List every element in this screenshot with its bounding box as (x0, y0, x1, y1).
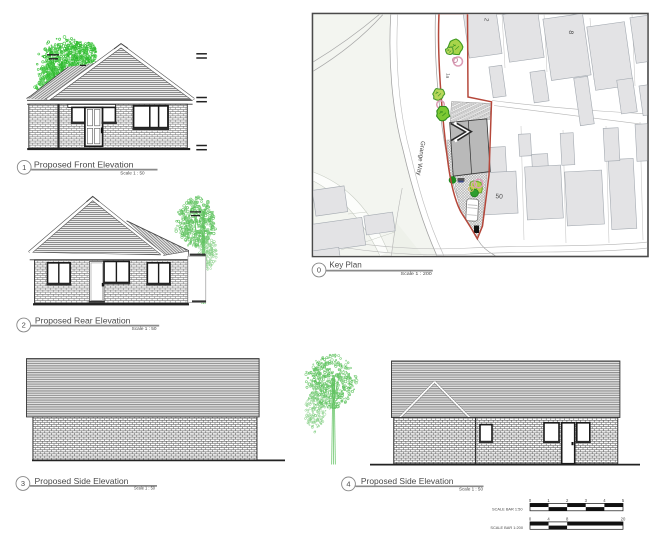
svg-text:SCALE BAR 1:200: SCALE BAR 1:200 (490, 525, 523, 530)
svg-text:0: 0 (317, 266, 321, 275)
svg-text:20: 20 (621, 516, 626, 521)
svg-text:Proposed Side Elevation: Proposed Side Elevation (35, 476, 129, 486)
svg-text:4: 4 (346, 480, 350, 489)
svg-text:Scale 1 : 50: Scale 1 : 50 (459, 486, 484, 491)
svg-text:Proposed Side Elevation: Proposed Side Elevation (361, 476, 454, 486)
svg-text:Proposed Front Elevation: Proposed Front Elevation (34, 159, 134, 169)
svg-text:SCALE BAR 1:50: SCALE BAR 1:50 (492, 507, 523, 512)
svg-text:Key Plan: Key Plan (329, 260, 361, 270)
svg-text:50: 50 (495, 193, 503, 201)
svg-text:Scale 1 : 200: Scale 1 : 200 (401, 271, 433, 276)
svg-text:3: 3 (21, 479, 25, 488)
svg-text:Scale 1 : 50: Scale 1 : 50 (132, 326, 157, 331)
svg-text:Proposed Rear Elevation: Proposed Rear Elevation (35, 315, 131, 325)
svg-text:Scale 1 : 50: Scale 1 : 50 (120, 170, 145, 175)
svg-text:Scale 1 : 50: Scale 1 : 50 (134, 486, 156, 491)
svg-text:2: 2 (22, 321, 26, 330)
svg-text:1: 1 (22, 163, 26, 172)
